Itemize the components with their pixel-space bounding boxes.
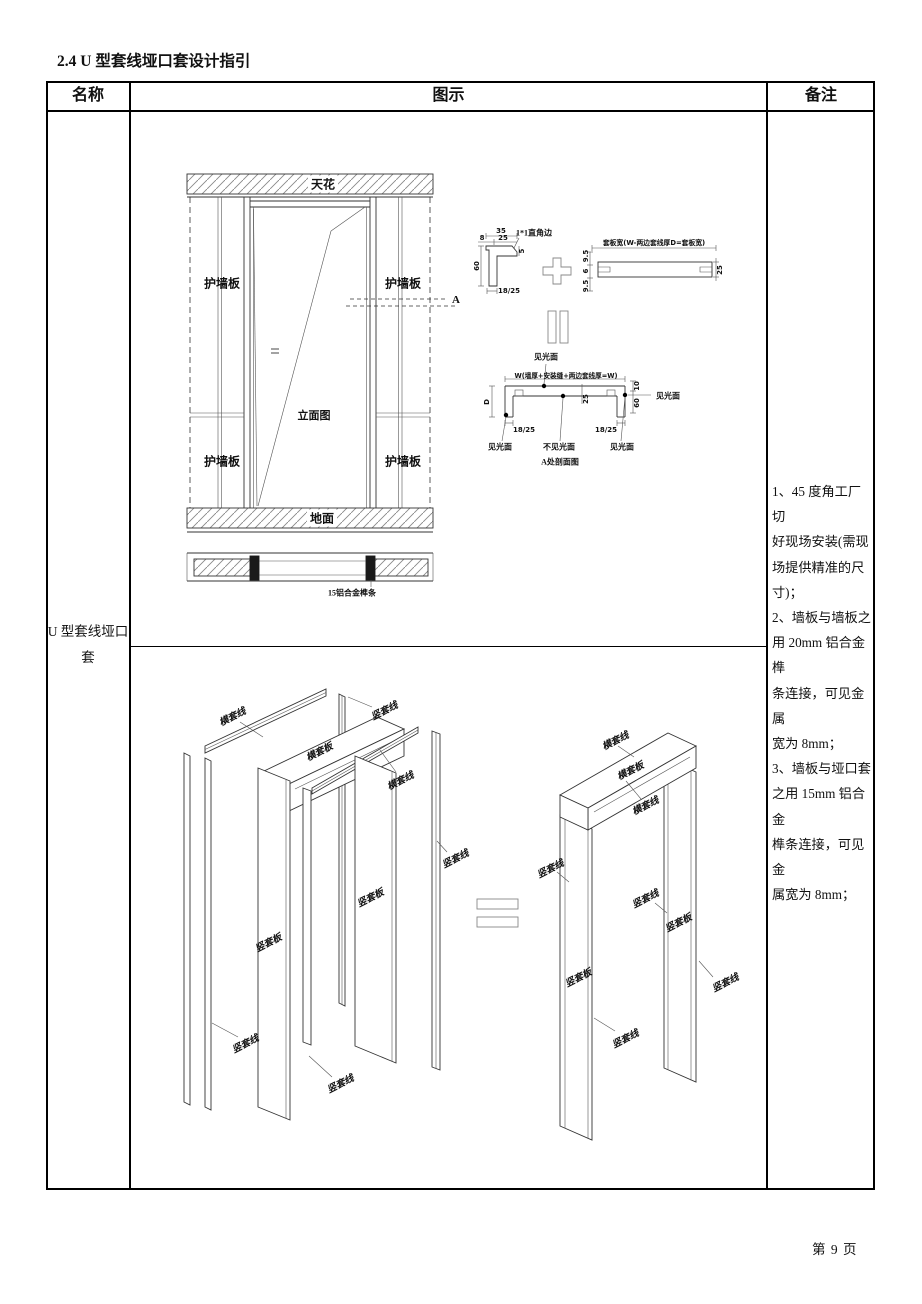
visible-face-right: 见光面 bbox=[656, 391, 680, 402]
note-line: 用 20mm 铝合金榫 bbox=[772, 630, 872, 680]
wall-panel-label: 护墙板 bbox=[385, 275, 421, 292]
row-name-line1: U 型套线垭口 bbox=[48, 624, 129, 639]
note-line: 寸)； bbox=[772, 580, 872, 605]
note-line: 之用 15mm 铝合金 bbox=[772, 781, 872, 831]
floor-label: 地面 bbox=[307, 510, 337, 527]
section-a-caption: A处剖面图 bbox=[541, 457, 579, 468]
page-title: 2.4 U 型套线垭口套设计指引 bbox=[57, 49, 250, 71]
dim-9-5-top: 9.5 bbox=[582, 250, 590, 262]
wall-panel-label: 护墙板 bbox=[204, 453, 240, 470]
dim-9-5-bottom: 9.5 bbox=[582, 280, 590, 292]
visible-face-bottom-left: 见光面 bbox=[488, 442, 512, 453]
elevation-title: 立面图 bbox=[298, 407, 331, 423]
section-mark: A bbox=[452, 294, 460, 306]
note-line: 条连接，可见金属 bbox=[772, 681, 872, 731]
note-line: 3、墙板与垭口套 bbox=[772, 756, 872, 781]
row-name-line2: 套 bbox=[81, 650, 95, 665]
note-line: 好现场安装(需现 bbox=[772, 529, 872, 554]
dim-10: 10 bbox=[633, 381, 641, 391]
dim-25-mid: 25 bbox=[582, 394, 590, 404]
dim-60-right: 60 bbox=[633, 398, 641, 408]
note-line: 属宽为 8mm； bbox=[772, 882, 872, 907]
dim-8: 8 bbox=[480, 234, 485, 242]
dim-18-25: 18/25 bbox=[498, 287, 520, 295]
dim-5: 5 bbox=[518, 249, 526, 254]
dim-25: 25 bbox=[498, 234, 508, 242]
wall-panel-label: 护墙板 bbox=[204, 275, 240, 292]
visible-face-bottom-right: 见光面 bbox=[610, 442, 634, 453]
col-header-name: 名称 bbox=[46, 81, 130, 111]
dim-25-right: 25 bbox=[716, 265, 724, 275]
section-width-formula: W(墙厚+安装缝+两边套线厚=W) bbox=[514, 370, 617, 380]
note-line: 宽为 8mm； bbox=[772, 731, 872, 756]
note-line: 2、墙板与墙板之 bbox=[772, 605, 872, 630]
note-line: 1、45 度角工厂切 bbox=[772, 479, 872, 529]
dim-60: 60 bbox=[473, 261, 481, 271]
chamfer-label: 1*1直角边 bbox=[516, 228, 552, 239]
page-number: 第 9 页 bbox=[812, 1238, 858, 1258]
note-line: 榫条连接，可见金 bbox=[772, 832, 872, 882]
plan-note-label: 15铝合金榫条 bbox=[328, 588, 376, 599]
note-line: 场提供精准的尺 bbox=[772, 555, 872, 580]
dim-6: 6 bbox=[582, 269, 590, 274]
document-page: 2.4 U 型套线垭口套设计指引 名称 图示 备注 U 型套线垭口 套 1、45… bbox=[0, 0, 922, 1304]
plank-width-formula: 套板宽(W-两边套线厚D=套板宽) bbox=[603, 237, 705, 247]
col-header-diagram: 图示 bbox=[130, 81, 767, 111]
dim-18-25-right: 18/25 bbox=[595, 426, 617, 434]
dim-d: D bbox=[483, 399, 491, 405]
ceiling-label: 天花 bbox=[308, 176, 338, 193]
visible-face-top: 见光面 bbox=[534, 352, 558, 363]
row-notes-cell: 1、45 度角工厂切 好现场安装(需现 场提供精准的尺 寸)； 2、墙板与墙板之… bbox=[772, 479, 872, 907]
row-name-cell: U 型套线垭口 套 bbox=[46, 619, 130, 671]
wall-panel-label: 护墙板 bbox=[385, 453, 421, 470]
dim-18-25-left: 18/25 bbox=[513, 426, 535, 434]
elevation-drawing bbox=[130, 112, 767, 646]
col-header-notes: 备注 bbox=[767, 81, 875, 111]
not-visible-face: 不见光面 bbox=[543, 442, 575, 453]
